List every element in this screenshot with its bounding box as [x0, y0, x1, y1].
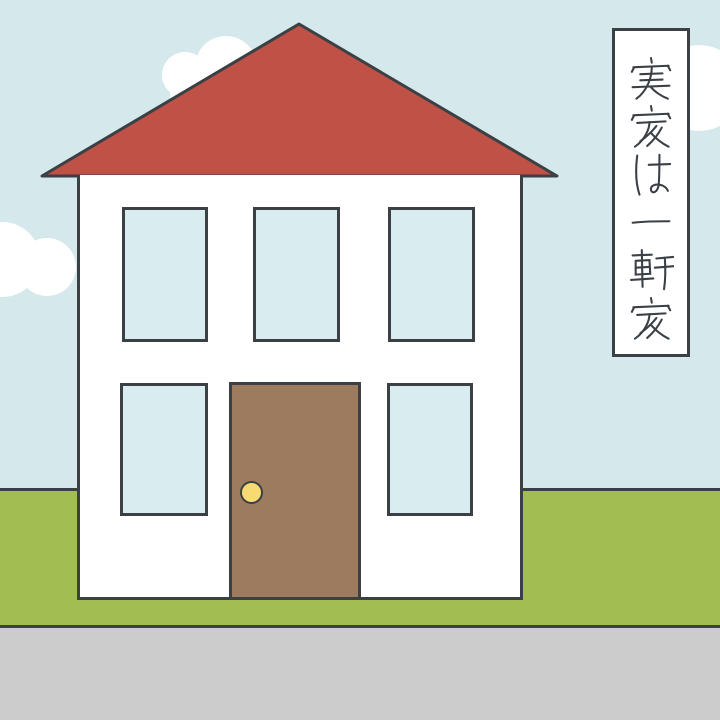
kanji-家-glyph [628, 103, 674, 149]
cloud-puff [18, 238, 76, 296]
doorknob [240, 481, 263, 504]
caption-box: 実家は一軒家 [612, 28, 690, 357]
kanji-一-glyph [628, 199, 674, 245]
roof [30, 14, 570, 184]
window-upper-right [388, 207, 475, 342]
window-upper-left [122, 207, 208, 342]
kanji-軒-glyph [628, 247, 674, 293]
illustration-scene: 実家は一軒家 [0, 0, 720, 720]
window-upper-middle [253, 207, 340, 342]
front-door [229, 382, 361, 600]
kanji-は-glyph [628, 151, 674, 197]
window-lower-left [120, 383, 208, 516]
kanji-実-glyph [628, 55, 674, 101]
kanji-家-glyph [628, 295, 674, 341]
window-lower-right [387, 383, 473, 516]
road [0, 625, 720, 720]
